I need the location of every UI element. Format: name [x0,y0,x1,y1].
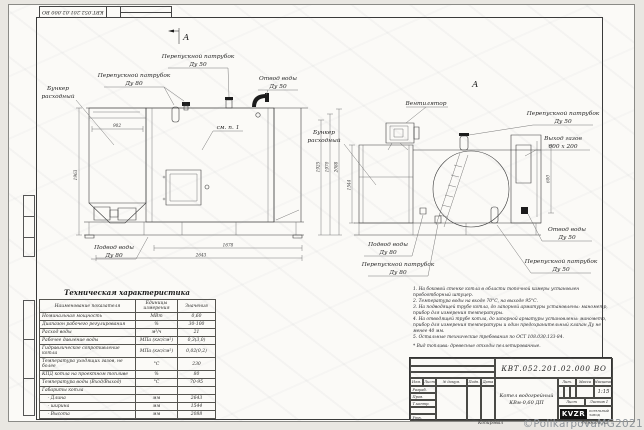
left-view-labels: Бункер расходный Перепускной патрубок Ду… [41,53,298,259]
dim-hopper-width: 902 [113,123,121,128]
tb-row-tkontr: Т.контр. [410,400,436,407]
tech-characteristics: Техническая характеристика Наименование … [39,288,215,419]
tb-product-name: Котел водогрейный КВм-0,60 ДП [495,378,558,421]
margin-stamp-large [23,300,35,416]
dim-side-width: 1544 [347,179,352,190]
table-row: КПД котла на проектном топливе%80 [40,371,216,379]
label-water-out-2-dn: Ду 50 [557,235,576,241]
dim-total-length: 2643 [195,253,207,258]
tb-scale-header: Масштаб [594,378,613,386]
row-units: °С [136,379,178,387]
tb-lit-header: Лит. [558,378,576,386]
company-logo: KVZR КОТЕЛЬНЫЙ ЗАВОД [560,409,611,419]
row-units [136,387,178,395]
label-water-in-2-dn: Ду 80 [378,250,397,256]
table-row: Гидравлическое сопротивление котлаМПа (к… [40,345,216,358]
table-row: Габариты котла [40,387,216,395]
row-name: Рабочее давление воды [40,337,136,345]
row-units: м³/ч [136,329,178,337]
label-water-out-2: Отвод воды [548,227,586,233]
tb-col-podp: Подп. [467,378,481,386]
tb-col-izm: Изм. [410,378,423,386]
row-value: 230 [178,358,216,371]
label-water-in-1: Подвод воды [93,245,134,251]
label-bypass50-right: Перепускной патрубок [526,110,600,117]
tb-date-col [481,386,495,421]
label-bypass80: Перепускной патрубок [97,72,171,79]
label-gas-out: Выход газов [543,136,582,142]
row-name: - Длина [40,395,136,403]
row-value: 2643 [178,395,216,403]
dim-left-height: 1963 [73,169,78,180]
tech-header-value: Значения [178,300,216,313]
row-value: 2088 [178,411,216,419]
label-water-in-2: Подвод воды [367,242,408,248]
table-row: - ширинамм1544 [40,403,216,411]
label-see-note: см. п. 1 [217,125,240,131]
dim-h3: 2088 [334,161,339,173]
label-bypass50-right-dn: Ду 50 [553,119,572,125]
label-water-out-1-dn: Ду 50 [268,84,287,90]
tb-sheets-label: Листов 1 [585,398,613,406]
tech-table-body: Номинальная мощностьМВт0,60Диапазон рабо… [40,313,216,419]
row-value: 0,02(0,2) [178,345,216,358]
row-value: 80 [178,371,216,379]
row-name: - Высота [40,411,136,419]
table-row: Номинальная мощностьМВт0,60 [40,313,216,321]
tb-sign-col [467,386,481,421]
notes-block: 1. На боковой стенке котла в области топ… [413,287,611,349]
tb-row-prov: Пров. [410,393,436,400]
row-name: Габариты котла [40,387,136,395]
note-item: 4. На отводящей трубе котла, до запорной… [413,317,611,334]
label-bypass80-bottom-dn: Ду 80 [388,270,407,276]
table-row: - Длинамм2643 [40,395,216,403]
tech-table: Наименование показателя Единицы измерени… [39,299,216,419]
tb-change-divider-2 [410,371,495,373]
tb-row-blank [410,407,436,414]
tb-mass-value [576,386,594,398]
label-hopper-side: Бункер [312,130,335,136]
label-bypass50-dn: Ду 50 [188,62,207,68]
table-row: - Высотамм2088 [40,411,216,419]
tb-product-line2: КВм-0,60 ДП [509,400,544,407]
row-value: 30-100 [178,321,216,329]
row-units: % [136,321,178,329]
label-water-in-1-dn: Ду 80 [104,253,123,259]
tb-product-line1: Котел водогрейный [500,393,554,400]
row-units: МВт [136,313,178,321]
row-name: - ширина [40,403,136,411]
logo-mark: KVZR [560,409,587,419]
top-stamp-number: КВТ.052.201.02.000 ВО [42,9,104,15]
left-view: 902 1 [73,93,342,261]
row-units: °С [136,358,178,371]
row-value: 70-95 [178,379,216,387]
fuel-note: * Вид топлива: древесные отходы пеллетир… [413,344,611,349]
section-marker-letter: А [182,33,189,43]
label-fan: Вентилятор [405,101,447,107]
dim-conveyor-length: 1678 [223,243,234,248]
row-value: 0,60 [178,313,216,321]
tb-row-razrab: Разраб. [410,386,436,393]
note-item: 1. На боковой стенке котла в области топ… [413,287,611,298]
row-units: % [136,371,178,379]
right-view: А 600 [347,80,555,235]
tb-change-rows [410,358,495,378]
note-item: 2. Температура воды на входе 70°С, на вы… [413,299,611,305]
tb-col-doc: № докум. [436,378,467,386]
label-bypass50-bottom: Перепускной патрубок [524,258,598,265]
label-bypass80-bottom: Перепускной патрубок [361,261,435,268]
margin-stamp-small [23,195,35,257]
row-name: Температура воды (Вход/Выход) [40,379,136,387]
row-name: КПД котла на проектном топливе [40,371,136,379]
table-row: Диапазон рабочего регулирования%30-100 [40,321,216,329]
label-bypass50: Перепускной патрубок [161,53,235,60]
title-block: Изм. Лист № докум. Подп. Дата Разраб. Пр… [409,357,612,420]
tb-sheet-label: Лист [558,398,585,406]
logo-subtext: КОТЕЛЬНЫЙ ЗАВОД [589,410,611,417]
tb-mass-header: Масса [576,378,594,386]
tb-col-list: Лист [423,378,436,386]
row-units: МПа (кгс/см²) [136,345,178,358]
row-name: Температура уходящих газов, не более [40,358,136,371]
row-name: Номинальная мощность [40,313,136,321]
page: КВТ.052.201.02.000 ВО А [0,0,644,430]
row-value [178,387,216,395]
row-value: 0,3(3,0) [178,337,216,345]
table-row: Рабочее давление водыМПа (кгс/см²)0,3(3,… [40,337,216,345]
row-units: мм [136,411,178,419]
view-letter: А [471,80,478,90]
row-units: мм [136,395,178,403]
label-water-out-1: Отвод воды [259,76,297,82]
label-hopper-side-2: расходный [307,138,340,144]
dim-gas-height: 600 [546,175,551,183]
table-row: Температура уходящих газов, не более°С23… [40,358,216,371]
row-value: 21 [178,329,216,337]
row-units: МПа (кгс/см²) [136,337,178,345]
label-hopper-2: расходный [41,94,74,100]
tech-table-title: Техническая характеристика [39,288,215,297]
row-name: Расход воды [40,329,136,337]
row-name: Диапазон рабочего регулирования [40,321,136,329]
tb-scale-value: 1:15 [594,386,613,398]
row-value: 1544 [178,403,216,411]
table-row: Температура воды (Вход/Выход)°С70-95 [40,379,216,387]
note-item: 5. Остальные технические требования по О… [413,335,611,341]
tb-change-divider [410,365,495,367]
tb-row-utv: Утв. [410,414,436,421]
author-watermark: ©PolikarpovaMG2021 [523,418,643,430]
notes-list: 1. На боковой стенке котла в области топ… [413,287,611,340]
label-bypass50-bottom-dn: Ду 50 [551,267,570,273]
tech-table-header-row: Наименование показателя Единицы измерени… [40,300,216,313]
tb-col-data: Дата [481,378,495,386]
label-bypass80-dn: Ду 80 [124,81,143,87]
tech-header-name: Наименование показателя [40,300,136,313]
row-units: мм [136,403,178,411]
drawing-sheet: КВТ.052.201.02.000 ВО А [8,4,635,422]
label-hopper: Бункер [46,86,69,92]
note-item: 3. На подводящей трубе котла, до запорно… [413,305,611,316]
label-gas-out-size: 600 х 200 [548,144,577,150]
tb-doc-number: КВТ.052.201.02.000 ВО [495,358,613,378]
technical-drawing: А 902 [36,17,602,282]
row-name: Гидравлическое сопротивление котла [40,345,136,358]
tb-doc-col [436,386,467,421]
dim-h1: 1925 [316,161,321,172]
tech-header-units: Единицы измерения [136,300,178,313]
dim-h2: 1970 [325,161,330,172]
section-marker: А [168,28,189,44]
table-row: Расход водым³/ч21 [40,329,216,337]
